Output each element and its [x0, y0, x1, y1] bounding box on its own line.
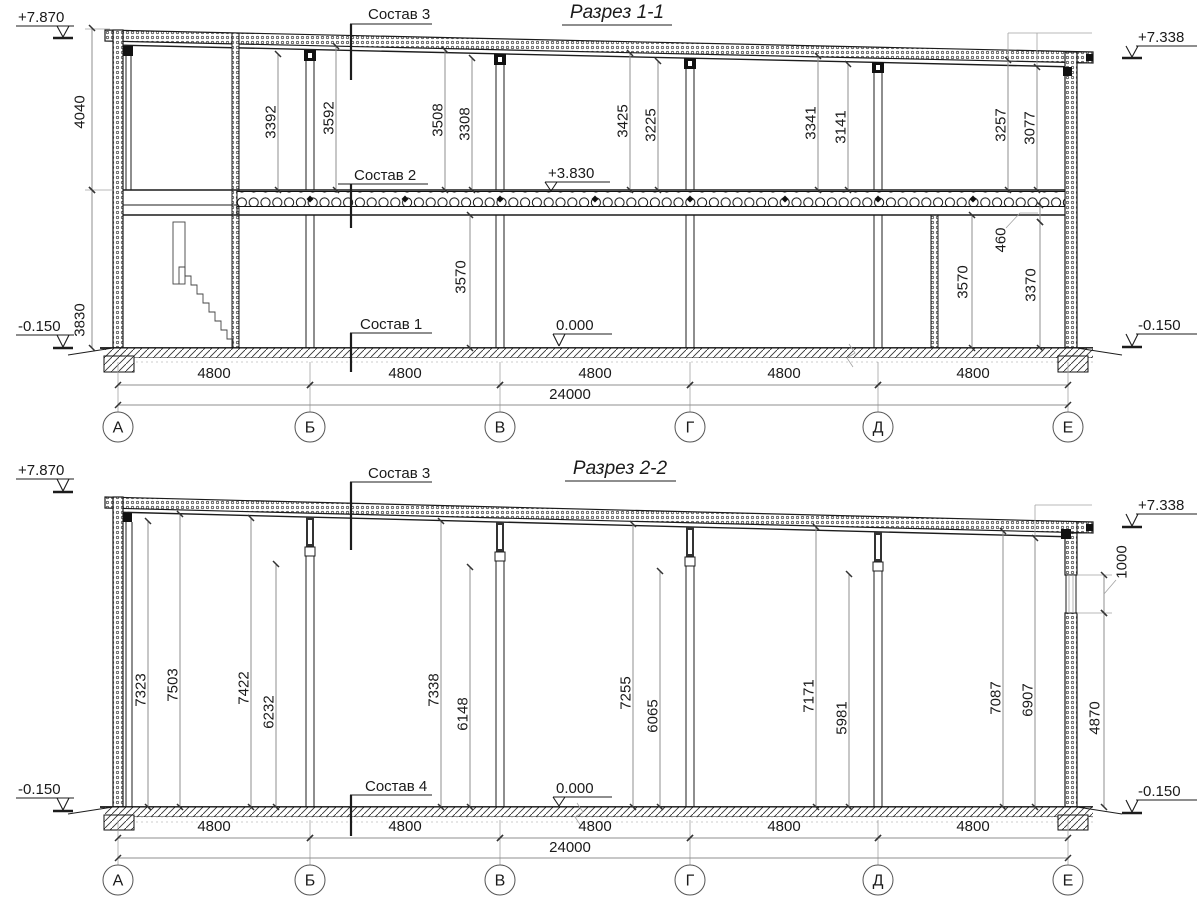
- dim-int-8: 7171: [800, 679, 817, 712]
- bottom-dimensions: 4800 4800 4800 4800 4800 24000: [118, 362, 1068, 414]
- foundation-right: [1058, 356, 1088, 372]
- floor-slab: [123, 190, 1065, 215]
- elevation-zero: 0.000: [553, 317, 612, 346]
- section-1-title-text: Разрез 1-1: [570, 2, 664, 23]
- axis-a: А: [113, 420, 124, 437]
- elevation-value: -0.150: [18, 318, 61, 335]
- roof: [105, 30, 1093, 67]
- axis-v: В: [495, 420, 506, 437]
- left-wall: [113, 497, 123, 807]
- walls: [113, 30, 1077, 348]
- section-2-title-text: Разрез 2-2: [573, 458, 668, 479]
- foundation-left: [104, 815, 134, 830]
- bottom-dimensions: 4800 4800 4800 4800 4800 24000: [118, 818, 1068, 868]
- dim-upper-3: 3308: [456, 107, 473, 140]
- dim-int-7: 6065: [644, 699, 661, 732]
- dim-upper-7: 3141: [832, 110, 849, 143]
- roof: [105, 497, 1093, 537]
- section-2-title: Разрез 2-2: [565, 458, 676, 481]
- bay-dim-0: 4800: [197, 365, 230, 382]
- right-dimensions: 1000 4870: [1077, 545, 1130, 807]
- drawing-sheet: Разрез 1-1: [0, 0, 1200, 900]
- axis-b: Б: [305, 873, 316, 890]
- elevation-zero: 0.000: [553, 780, 612, 806]
- layer-labels: Состав 3 Состав 2 Состав 1: [338, 6, 432, 372]
- dim-460: 460: [992, 227, 1009, 252]
- partition-wall: [931, 215, 938, 348]
- section-2-2: Разрез 2-2: [0, 450, 1200, 900]
- axis-b: Б: [305, 420, 316, 437]
- elevation-grade-left: -0.150: [16, 318, 74, 348]
- elevation-top-right: +7.338: [1122, 497, 1197, 527]
- columns: [305, 517, 883, 807]
- left-dimensions: 4040 3830: [71, 28, 113, 348]
- column-b: [305, 517, 315, 807]
- column-d: [873, 532, 883, 807]
- dim-int-4: 7338: [425, 673, 442, 706]
- dim-int-3: 6232: [260, 695, 277, 728]
- hollow-core-slab: [237, 192, 1065, 207]
- dim-upper-8: 3257: [992, 108, 1009, 141]
- column-v: [495, 522, 505, 807]
- grid-axes: А Б В Г Д Е: [103, 412, 1083, 442]
- bay-dim-2: 4800: [578, 818, 611, 835]
- bay-dim-2: 4800: [578, 365, 611, 382]
- bay-dim-3: 4800: [767, 818, 800, 835]
- sostav1-label: Состав 1: [360, 316, 422, 333]
- axis-v: В: [495, 873, 506, 890]
- right-wall-upper: [1065, 533, 1077, 575]
- foundation-right: [1058, 815, 1088, 830]
- elevation-value: +3.830: [548, 165, 594, 182]
- dim-int-10: 7087: [987, 681, 1004, 714]
- right-wall: [1065, 52, 1077, 348]
- axis-a: А: [113, 873, 124, 890]
- bay-dim-1: 4800: [388, 818, 421, 835]
- elevation-value: +7.870: [18, 462, 64, 479]
- dim-4040: 4040: [71, 95, 88, 128]
- elevation-value: +7.338: [1138, 29, 1184, 46]
- dim-int-2: 7422: [235, 671, 252, 704]
- sostav3-label: Состав 3: [368, 465, 430, 482]
- staircase: [173, 222, 233, 348]
- section-1-title: Разрез 1-1: [562, 2, 672, 25]
- axis-e: Е: [1063, 420, 1074, 437]
- grid-axes: А Б В Г Д Е: [103, 865, 1083, 895]
- bay-dim-4: 4800: [956, 365, 989, 382]
- dim-upper-0: 3392: [262, 105, 279, 138]
- total-dim: 24000: [549, 839, 591, 856]
- interior-dimensions: 7323 7503 7422 6232 7338 6148 7255 6065 …: [132, 505, 1092, 807]
- bay-dim-4: 4800: [956, 818, 989, 835]
- dim-upper-4: 3425: [614, 104, 631, 137]
- axis-e: Е: [1063, 873, 1074, 890]
- left-wall: [113, 30, 123, 348]
- elevation-value: -0.150: [18, 781, 61, 798]
- dim-upper-9: 3077: [1021, 111, 1038, 144]
- elevation-value: -0.150: [1138, 783, 1181, 800]
- bay-dim-0: 4800: [197, 818, 230, 835]
- dim-4870: 4870: [1086, 701, 1103, 734]
- elevation-top-left: +7.870: [16, 9, 74, 38]
- elevation-value: -0.150: [1138, 317, 1181, 334]
- dim-upper-5: 3225: [642, 108, 659, 141]
- right-wall-lower: [1065, 613, 1077, 807]
- dim-upper-2: 3508: [429, 103, 446, 136]
- dim-upper-6: 3341: [802, 106, 819, 139]
- dim-upper-1: 3592: [320, 101, 337, 134]
- elevation-value: +7.338: [1138, 497, 1184, 514]
- dim-int-5: 6148: [454, 697, 471, 730]
- axis-g: Г: [686, 873, 695, 890]
- walls: [113, 497, 1077, 807]
- elevation-value: 0.000: [556, 317, 594, 334]
- foundation-left: [104, 356, 134, 372]
- sostav3-label: Состав 3: [368, 6, 430, 23]
- elevation-top-left: +7.870: [16, 462, 74, 492]
- window: [1066, 575, 1076, 613]
- bay-dim-1: 4800: [388, 365, 421, 382]
- elevation-value: 0.000: [556, 780, 594, 797]
- dim-3570-left: 3570: [452, 260, 469, 293]
- elevation-value: +7.870: [18, 9, 64, 26]
- dim-int-0: 7323: [132, 673, 149, 706]
- dim-int-9: 5981: [833, 701, 850, 734]
- lower-dimensions: 3570 3570 3370 460: [452, 205, 1040, 348]
- elevation-top-right: +7.338: [1122, 29, 1197, 58]
- elevation-grade-right: -0.150: [1122, 783, 1197, 813]
- axis-d: Д: [873, 873, 884, 890]
- elevation-floor2: +3.830: [545, 165, 610, 191]
- section-1-1: Разрез 1-1: [0, 0, 1200, 450]
- total-dim: 24000: [549, 386, 591, 403]
- dim-3370: 3370: [1022, 268, 1039, 301]
- sostav4-label: Состав 4: [365, 778, 427, 795]
- dim-int-6: 7255: [617, 676, 634, 709]
- sostav2-label: Состав 2: [354, 167, 416, 184]
- stair-steps: [179, 267, 233, 348]
- dim-3830: 3830: [71, 303, 88, 336]
- dim-1000: 1000: [1113, 545, 1130, 578]
- dim-int-11: 6907: [1019, 683, 1036, 716]
- dim-3570-right: 3570: [954, 265, 971, 298]
- dim-int-1: 7503: [164, 668, 181, 701]
- elevation-grade-left: -0.150: [16, 781, 74, 811]
- elevation-grade-right: -0.150: [1122, 317, 1197, 347]
- bay-dim-3: 4800: [767, 365, 800, 382]
- axis-g: Г: [686, 420, 695, 437]
- column-g: [685, 527, 695, 807]
- axis-d: Д: [873, 420, 884, 437]
